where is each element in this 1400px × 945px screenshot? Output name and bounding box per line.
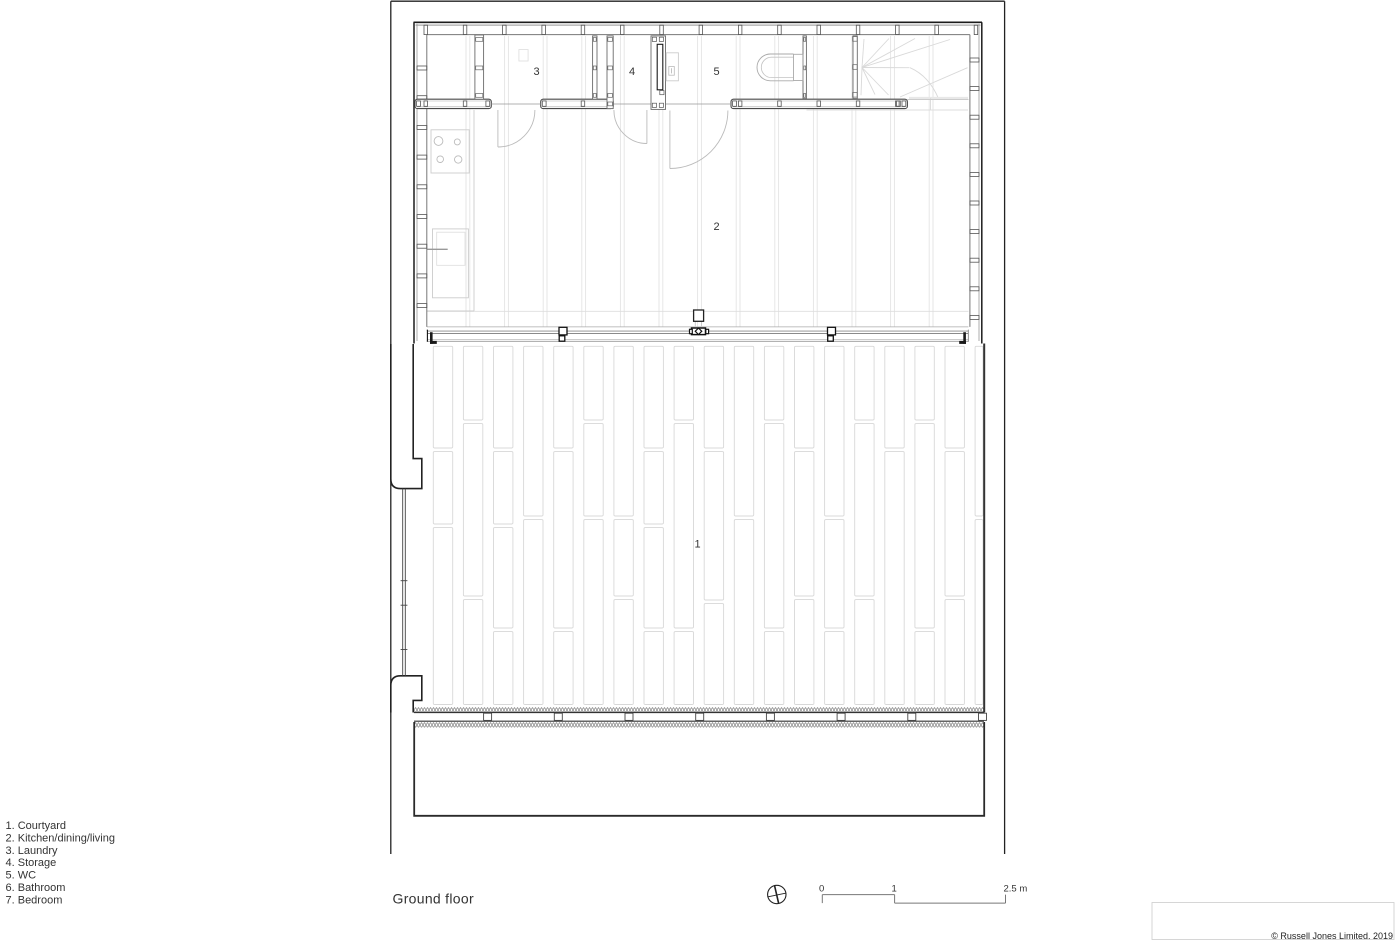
svg-text:1. Courtyard: 1. Courtyard	[6, 820, 67, 832]
svg-text:2. Kitchen/dining/living: 2. Kitchen/dining/living	[6, 832, 115, 844]
svg-text:0: 0	[819, 884, 824, 895]
svg-text:5. WC: 5. WC	[6, 870, 37, 882]
svg-text:© Russell Jones Limited. 2019: © Russell Jones Limited. 2019	[1271, 931, 1393, 941]
svg-text:Ground floor: Ground floor	[393, 891, 474, 907]
svg-text:7. Bedroom: 7. Bedroom	[6, 894, 63, 906]
svg-text:4. Storage: 4. Storage	[6, 857, 57, 869]
svg-text:3. Laundry: 3. Laundry	[6, 845, 58, 857]
svg-text:1: 1	[694, 538, 700, 550]
svg-text:2.5 m: 2.5 m	[1004, 884, 1028, 895]
svg-text:1: 1	[892, 884, 897, 895]
svg-text:5: 5	[713, 66, 719, 78]
svg-text:4: 4	[629, 66, 635, 78]
svg-text:6. Bathroom: 6. Bathroom	[6, 882, 66, 894]
svg-text:3: 3	[533, 66, 539, 78]
svg-text:2: 2	[713, 221, 719, 233]
